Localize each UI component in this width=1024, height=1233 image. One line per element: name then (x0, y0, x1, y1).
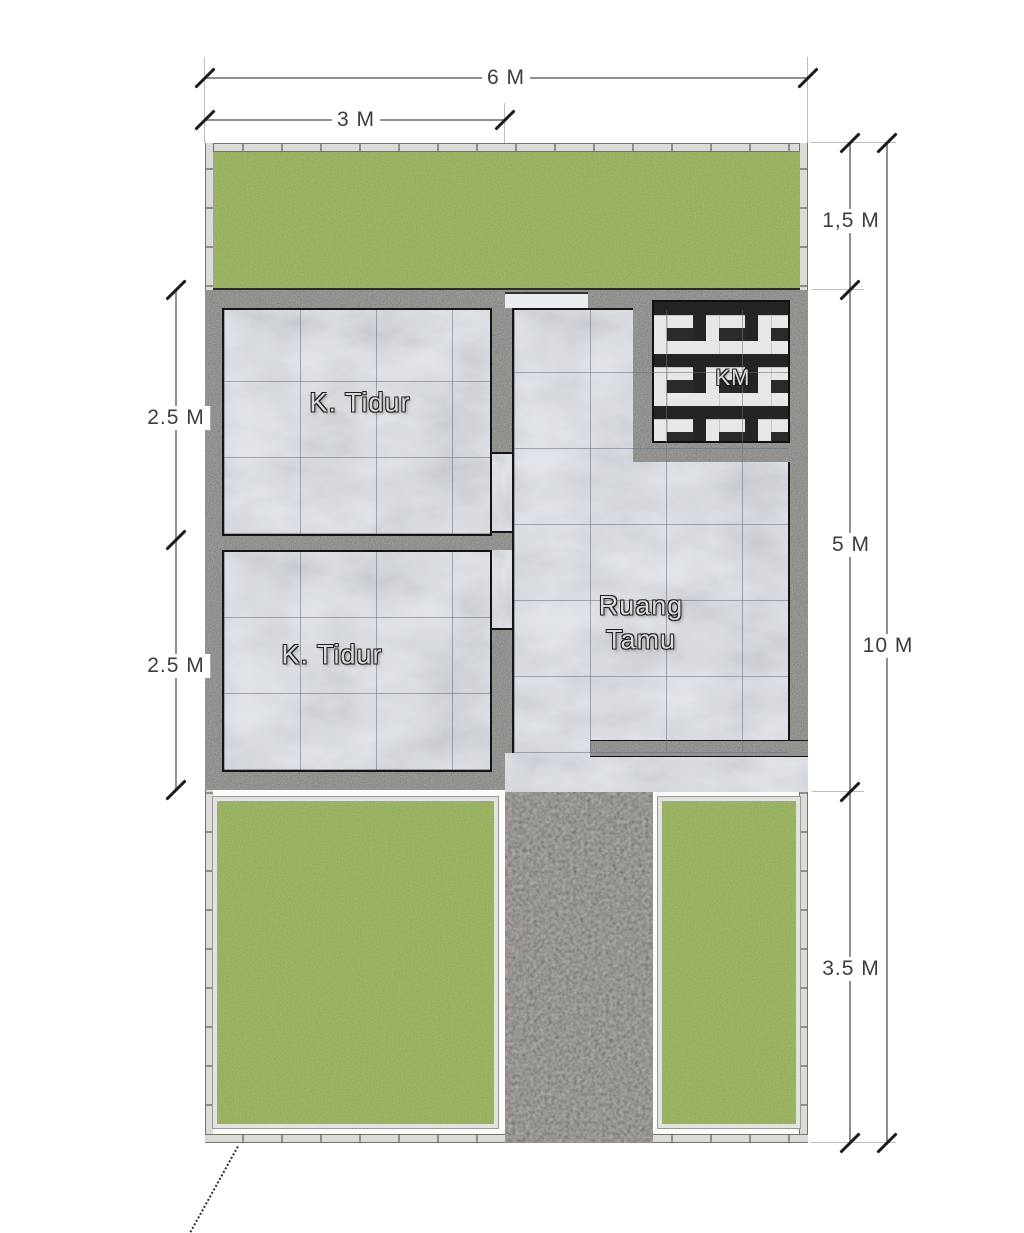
room-label-bedroom-top: K. Tidur (309, 388, 410, 419)
extension-line (504, 103, 505, 143)
room-label-bedroom-bottom: K. Tidur (281, 640, 382, 671)
plot-corner-dotted-line (189, 1146, 238, 1233)
front-lawn-left (213, 797, 498, 1128)
room-label-bathroom: KM (716, 365, 751, 391)
extension-line (204, 57, 205, 143)
dim-label-bedroom-top-depth: 2.5 M (142, 406, 210, 430)
dim-label-bedroom-bottom-depth: 2.5 M (142, 654, 210, 678)
dim-label-front-yard-depth: 3.5 M (817, 957, 885, 981)
front-porch (505, 753, 808, 792)
back-door-opening (505, 292, 588, 308)
living-room-label-line1: Ruang (599, 590, 684, 620)
extension-line (807, 57, 808, 143)
dim-label-house-depth: 5 M (827, 533, 875, 557)
dim-label-total-width: 6 M (482, 66, 530, 90)
walkway (505, 792, 653, 1143)
dim-label-total-depth: 10 M (858, 634, 919, 658)
fence-top (205, 143, 808, 152)
back-garden (213, 152, 800, 290)
room-label-living-room: Ruang Tamu (599, 589, 684, 657)
bedroom-bottom-door-opening (492, 550, 512, 630)
dim-label-partial-width: 3 M (332, 108, 380, 132)
dim-label-back-garden-depth: 1,5 M (817, 209, 885, 233)
front-lawn-right (658, 797, 800, 1128)
bedroom-top-door-opening (492, 452, 512, 533)
extension-line (812, 289, 864, 290)
bedroom-top-floor (222, 308, 492, 536)
dim-line-right-inner (849, 143, 851, 1143)
extension-line (812, 791, 864, 792)
living-room-label-line2: Tamu (606, 624, 676, 654)
floor-plan-canvas: 6 M 3 M 1,5 M 5 M 3.5 M 10 M 2.5 M 2.5 M (0, 0, 1024, 1233)
